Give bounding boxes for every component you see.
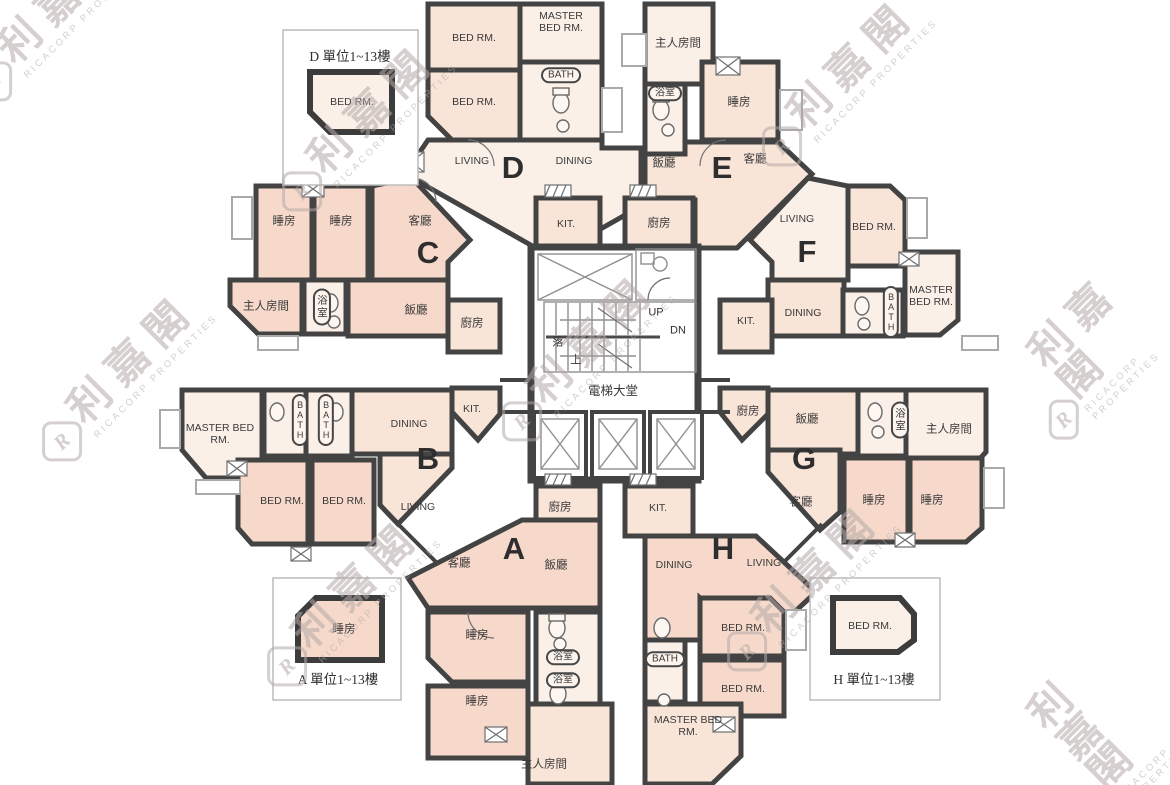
a-bath1: 浴室 bbox=[546, 649, 580, 665]
stairs-up-char: 上 bbox=[570, 354, 582, 367]
d-bed1: BED RM. bbox=[452, 32, 496, 44]
floorplan-drawing: .wall{stroke:#434343;stroke-width:5;stro… bbox=[0, 0, 1170, 785]
g-master: 主人房間 bbox=[926, 423, 972, 436]
a-living: 客廳 bbox=[448, 557, 471, 570]
a-kitchen: 廚房 bbox=[549, 501, 572, 514]
e-kitchen: 廚房 bbox=[648, 217, 671, 230]
g-bed2: 睡房 bbox=[921, 494, 944, 507]
g-living: 客廳 bbox=[790, 496, 813, 509]
stairs-dn-label: DN bbox=[670, 325, 686, 338]
a-bath2: 浴室 bbox=[546, 672, 580, 688]
a-bed1: 睡房 bbox=[466, 629, 489, 642]
stairs-down-char: 落 bbox=[552, 336, 564, 349]
lift-lobby-label: 電梯大堂 bbox=[588, 384, 638, 398]
e-master: 主人房間 bbox=[655, 37, 701, 50]
b-bed1: BED RM. bbox=[260, 495, 304, 507]
inset-d-room: BED RM. bbox=[330, 96, 374, 108]
f-kitchen: KIT. bbox=[737, 315, 755, 327]
b-dining: DINING bbox=[391, 418, 428, 430]
h-master: MASTER BED RM. bbox=[653, 714, 723, 738]
g-letter: G bbox=[792, 441, 816, 477]
c-letter: C bbox=[417, 235, 439, 271]
g-kitchen: 廚房 bbox=[737, 405, 760, 418]
c-dining: 飯廳 bbox=[405, 304, 428, 317]
d-letter: D bbox=[502, 150, 524, 186]
g-dining: 飯廳 bbox=[796, 413, 819, 426]
stairs-up-label: UP bbox=[648, 307, 663, 320]
b-bath1: BATH bbox=[292, 394, 308, 446]
e-dining: 飯廳 bbox=[653, 157, 676, 170]
d-living: LIVING bbox=[455, 155, 489, 167]
inset-a-caption: A 單位1~13樓 bbox=[298, 672, 378, 688]
h-kitchen: KIT. bbox=[649, 502, 667, 514]
a-bed2: 睡房 bbox=[466, 695, 489, 708]
inset-h-caption: H 單位1~13樓 bbox=[833, 672, 914, 688]
d-bed2: BED RM. bbox=[452, 96, 496, 108]
g-bed1: 睡房 bbox=[863, 494, 886, 507]
floorplan-page: .wall{stroke:#434343;stroke-width:5;stro… bbox=[0, 0, 1170, 785]
b-master: MASTER BED RM. bbox=[180, 422, 260, 446]
unit-g bbox=[720, 388, 986, 542]
d-master: MASTER BED RM. bbox=[529, 10, 593, 34]
inset-a-room: 睡房 bbox=[333, 623, 356, 636]
inset-d-caption: D 單位1~13樓 bbox=[309, 49, 390, 65]
f-master: MASTER BED RM. bbox=[901, 284, 961, 308]
e-bed1: 睡房 bbox=[728, 96, 751, 109]
b-bath2: BATH bbox=[318, 394, 334, 446]
inset-h-room: BED RM. bbox=[848, 620, 892, 632]
h-living: LIVING bbox=[747, 557, 781, 569]
f-living: LIVING bbox=[780, 213, 814, 225]
c-bed1: 睡房 bbox=[273, 215, 296, 228]
f-dining: DINING bbox=[785, 307, 822, 319]
a-letter: A bbox=[503, 531, 525, 567]
b-kitchen: KIT. bbox=[463, 403, 481, 415]
e-letter: E bbox=[712, 150, 733, 186]
g-bath: 浴室 bbox=[891, 402, 909, 439]
f-bed1: BED RM. bbox=[852, 221, 896, 233]
a-master: 主人房間 bbox=[521, 758, 567, 771]
c-bath: 浴室 bbox=[313, 289, 331, 326]
d-kitchen: KIT. bbox=[557, 218, 575, 230]
f-bath: BATH bbox=[883, 286, 899, 338]
e-living: 客廳 bbox=[744, 153, 767, 166]
b-living: LIVING bbox=[401, 501, 435, 513]
h-bath: BATH bbox=[645, 651, 685, 667]
c-bed2: 睡房 bbox=[330, 215, 353, 228]
d-dining: DINING bbox=[556, 155, 593, 167]
b-bed2: BED RM. bbox=[322, 495, 366, 507]
h-letter: H bbox=[712, 531, 734, 567]
c-living: 客廳 bbox=[409, 215, 432, 228]
h-bed1: BED RM. bbox=[721, 622, 765, 634]
h-bed2: BED RM. bbox=[721, 683, 765, 695]
b-letter: B bbox=[417, 441, 439, 477]
e-bath: 浴室 bbox=[648, 85, 682, 101]
f-letter: F bbox=[798, 234, 817, 270]
a-dining: 飯廳 bbox=[545, 559, 568, 572]
c-master: 主人房間 bbox=[243, 300, 289, 313]
d-bath: BATH bbox=[541, 67, 581, 83]
c-kitchen: 廚房 bbox=[461, 317, 484, 330]
h-dining: DINING bbox=[656, 559, 693, 571]
